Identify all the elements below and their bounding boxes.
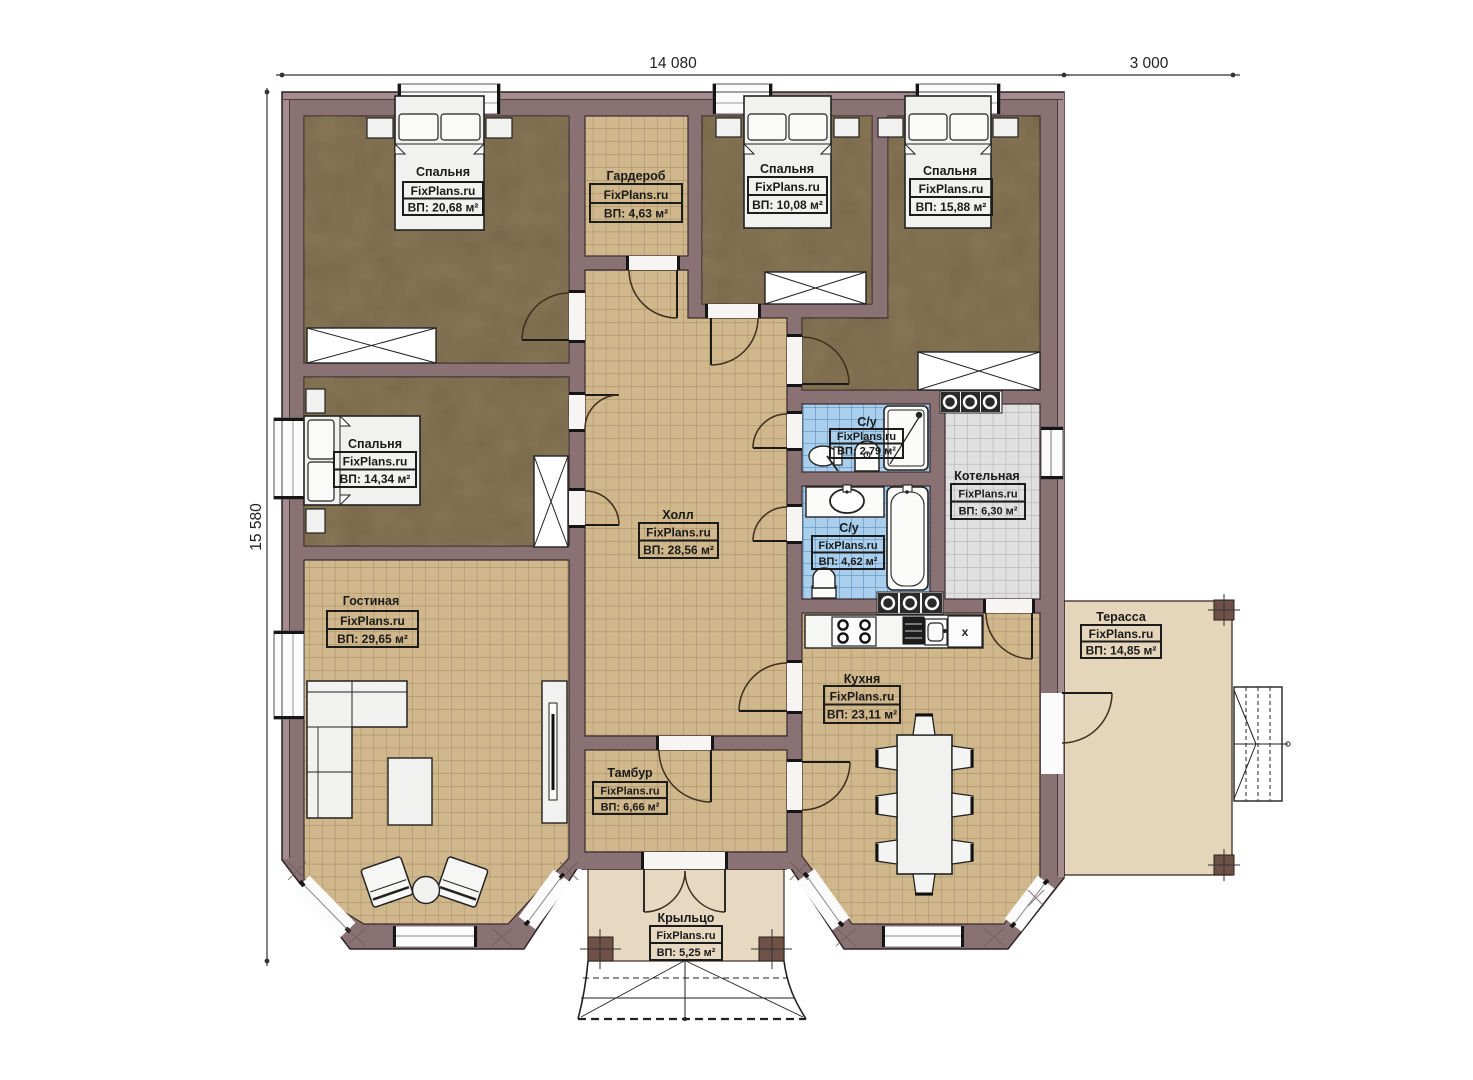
svg-text:ВП: 20,68 м²: ВП: 20,68 м² <box>408 201 479 215</box>
svg-text:Холл: Холл <box>662 508 693 522</box>
svg-text:Крыльцо: Крыльцо <box>658 911 715 925</box>
svg-text:Котельная: Котельная <box>954 469 1019 483</box>
svg-text:ВП: 28,56 м²: ВП: 28,56 м² <box>643 543 714 557</box>
svg-text:FixPlans.ru: FixPlans.ru <box>958 489 1017 501</box>
svg-text:14 080: 14 080 <box>649 55 697 72</box>
svg-text:ВП: 23,11 м²: ВП: 23,11 м² <box>827 708 897 722</box>
svg-text:FixPlans.ru: FixPlans.ru <box>340 614 405 628</box>
svg-text:Терасса: Терасса <box>1096 610 1147 624</box>
svg-text:Спальня: Спальня <box>923 164 977 178</box>
svg-text:Спальня: Спальня <box>416 165 470 179</box>
svg-text:FixPlans.ru: FixPlans.ru <box>837 431 896 443</box>
svg-text:FixPlans.ru: FixPlans.ru <box>411 184 476 198</box>
svg-text:15 580: 15 580 <box>248 503 265 551</box>
svg-text:Спальня: Спальня <box>348 437 402 451</box>
svg-text:FixPlans.ru: FixPlans.ru <box>343 455 408 469</box>
svg-text:ВП: 10,08 м²: ВП: 10,08 м² <box>752 198 823 212</box>
svg-text:FixPlans.ru: FixPlans.ru <box>604 188 669 202</box>
svg-text:FixPlans.ru: FixPlans.ru <box>830 690 895 704</box>
svg-text:FixPlans.ru: FixPlans.ru <box>818 540 877 552</box>
svg-text:ВП: 4,62 м²: ВП: 4,62 м² <box>819 556 878 568</box>
svg-text:FixPlans.ru: FixPlans.ru <box>656 930 715 942</box>
svg-text:3 000: 3 000 <box>1130 55 1169 72</box>
svg-text:ВП: 5,25 м²: ВП: 5,25 м² <box>657 947 716 959</box>
svg-text:ВП: 14,34 м²: ВП: 14,34 м² <box>340 472 411 486</box>
svg-text:Тамбур: Тамбур <box>607 766 653 780</box>
svg-text:Кухня: Кухня <box>844 672 881 686</box>
svg-text:Гардероб: Гардероб <box>606 169 665 183</box>
svg-text:С/у: С/у <box>839 521 859 535</box>
svg-text:ВП: 6,30 м²: ВП: 6,30 м² <box>959 506 1018 518</box>
svg-text:x: x <box>962 625 969 639</box>
svg-text:FixPlans.ru: FixPlans.ru <box>646 526 711 540</box>
svg-text:ВП: 6,66 м²: ВП: 6,66 м² <box>601 802 660 814</box>
svg-text:ВП: 14,85 м²: ВП: 14,85 м² <box>1086 644 1157 658</box>
svg-text:FixPlans.ru: FixPlans.ru <box>600 786 659 798</box>
svg-text:FixPlans.ru: FixPlans.ru <box>1089 627 1154 641</box>
svg-text:ВП: 15,88 м²: ВП: 15,88 м² <box>916 200 987 214</box>
svg-text:FixPlans.ru: FixPlans.ru <box>755 180 820 194</box>
svg-text:С/у: С/у <box>857 415 877 429</box>
svg-text:ВП: 4,63 м²: ВП: 4,63 м² <box>604 207 668 221</box>
svg-text:FixPlans.ru: FixPlans.ru <box>919 182 984 196</box>
svg-text:ВП: 2,79 м²: ВП: 2,79 м² <box>837 446 896 458</box>
svg-text:Спальня: Спальня <box>760 162 814 176</box>
svg-text:Гостиная: Гостиная <box>343 594 400 608</box>
svg-text:ВП: 29,65 м²: ВП: 29,65 м² <box>337 632 408 646</box>
